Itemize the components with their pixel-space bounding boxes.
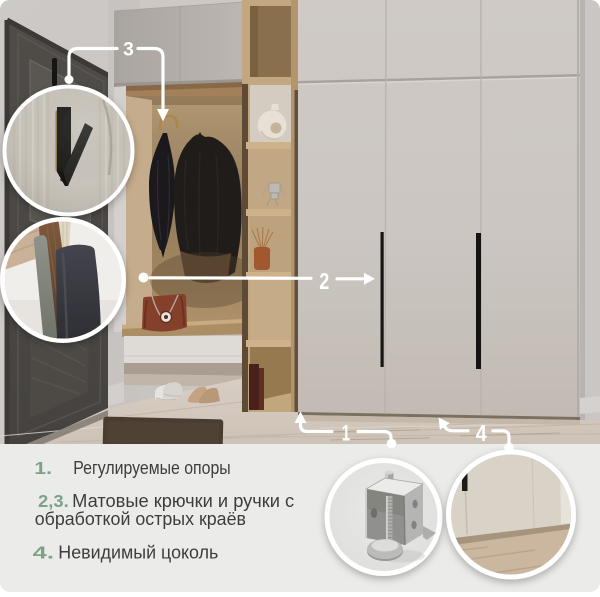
- svg-text:1: 1: [342, 420, 350, 445]
- svg-text:1.: 1.: [34, 458, 52, 478]
- svg-text:Матовые крючки и ручки с: Матовые крючки и ручки с: [72, 491, 294, 511]
- svg-text:2,3.: 2,3.: [38, 491, 69, 511]
- svg-text:Регулируемые опоры: Регулируемые опоры: [73, 458, 230, 478]
- svg-text:2: 2: [319, 268, 329, 294]
- svg-text:4: 4: [476, 420, 487, 446]
- svg-text:Невидимый цоколь: Невидимый цоколь: [58, 542, 218, 562]
- svg-text:обработкой острых краёв: обработкой острых краёв: [35, 509, 246, 529]
- svg-text:3: 3: [123, 40, 134, 61]
- svg-text:4.: 4.: [33, 542, 54, 562]
